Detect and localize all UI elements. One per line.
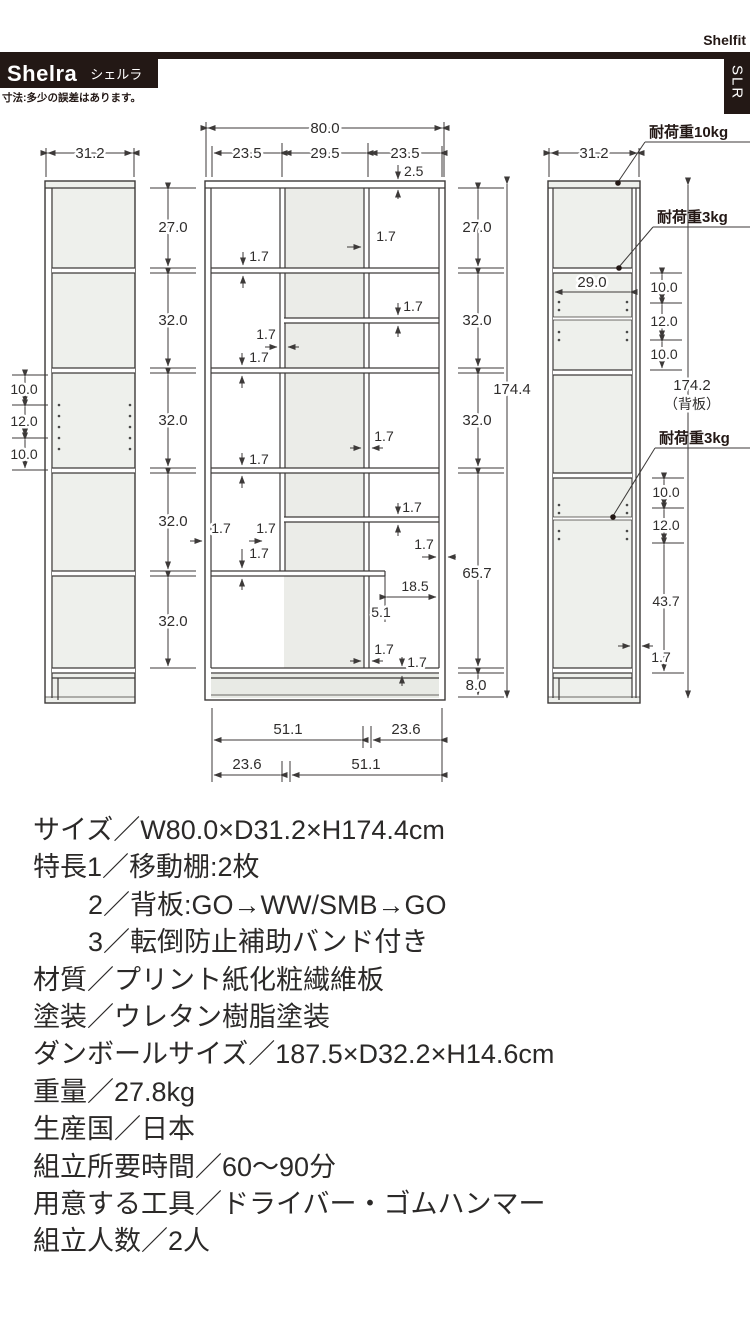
front-view: 80.0 23.5 29.5 23.5 2.5 <box>150 120 531 782</box>
dim-label: 8.0 <box>466 677 487 694</box>
dim-label: 174.2 <box>673 377 711 394</box>
dim-label: 32.0 <box>158 412 187 429</box>
dim-label: 12.0 <box>10 413 37 429</box>
dim-label: 32.0 <box>158 513 187 530</box>
svg-text:1.7: 1.7 <box>407 654 427 670</box>
dim-label: 174.4 <box>493 381 531 398</box>
dim-label: 27.0 <box>158 219 187 236</box>
dim-label: 43.7 <box>652 593 679 609</box>
dim-label: 23.6 <box>391 721 420 738</box>
spec-box-size: ダンボールサイズ／187.5×D32.2×H14.6cm <box>33 1036 733 1073</box>
svg-text:1.7: 1.7 <box>414 536 434 552</box>
spec-list: サイズ／W80.0×D31.2×H174.4cm 特長1／移動棚:2枚 2／背板… <box>33 812 733 1261</box>
svg-text:1.7: 1.7 <box>374 641 394 657</box>
dim-label: 31.2 <box>75 145 104 162</box>
side-view-right: 31.2 29.0 10.0 12.0 10.0 <box>548 123 750 703</box>
spec-feature-1: 特長1／移動棚:2枚 <box>33 849 733 886</box>
dim-label: 10.0 <box>10 381 37 397</box>
dim-label: 10.0 <box>652 484 679 500</box>
svg-text:1.7: 1.7 <box>249 248 269 264</box>
svg-text:1.7: 1.7 <box>402 499 422 515</box>
spec-people: 組立人数／2人 <box>33 1223 733 1260</box>
dim-label: 80.0 <box>310 120 339 137</box>
front-left-chain: 27.0 32.0 32.0 32.0 32.0 <box>150 188 196 668</box>
svg-text:1.7: 1.7 <box>249 545 269 561</box>
dim-label: 65.7 <box>462 565 491 582</box>
dim-label: 23.6 <box>232 756 261 773</box>
spec-assembly-time: 組立所要時間／60〜90分 <box>33 1149 733 1186</box>
dim-label: 12.0 <box>652 517 679 533</box>
spec-size: サイズ／W80.0×D31.2×H174.4cm <box>33 812 733 849</box>
load-label-shelf2: 耐荷重3kg <box>659 429 730 447</box>
dim-label: 10.0 <box>650 279 677 295</box>
dim-label: 51.1 <box>351 756 380 773</box>
dimension-diagram: 31.2 10.0 12.0 10.0 <box>0 0 750 795</box>
side-right-upper-pitch: 10.0 12.0 10.0 <box>650 273 682 370</box>
spec-feature-3: 3／転倒防止補助バンド付き <box>33 924 733 961</box>
svg-text:1.7: 1.7 <box>376 228 396 244</box>
svg-text:1.7: 1.7 <box>374 428 394 444</box>
spec-material: 材質／プリント紙化粧繊維板 <box>33 962 733 999</box>
dim-label: 18.5 <box>401 578 428 594</box>
svg-text:1.7: 1.7 <box>211 520 231 536</box>
front-bottom-dims: 51.1 23.6 23.6 51.1 <box>212 708 442 782</box>
dim-label: 27.0 <box>462 219 491 236</box>
dim-label: 29.5 <box>310 145 339 162</box>
dim-label: 51.1 <box>273 721 302 738</box>
svg-text:1.7: 1.7 <box>256 326 276 342</box>
dim-label: 2.5 <box>404 163 424 179</box>
dim-label: （背板） <box>664 396 720 412</box>
dim-label: 32.0 <box>462 312 491 329</box>
dim-label: 31.2 <box>579 145 608 162</box>
dim-label: 12.0 <box>650 313 677 329</box>
side-view-left: 31.2 10.0 12.0 10.0 <box>10 145 135 703</box>
dim-label: 1.7 <box>651 649 671 665</box>
dim-label: 23.5 <box>390 145 419 162</box>
dim-label: 5.1 <box>371 604 391 620</box>
spec-coating: 塗装／ウレタン樹脂塗装 <box>33 999 733 1036</box>
side-left-hole-pitch: 10.0 12.0 10.0 <box>10 375 48 470</box>
svg-text:1.7: 1.7 <box>249 451 269 467</box>
product-spec-sheet: Shelfit SLR Shelra シェルラ 寸法:多少の誤差はあります。 <box>0 0 750 1317</box>
dim-label: 10.0 <box>10 446 37 462</box>
svg-text:1.7: 1.7 <box>403 298 423 314</box>
dim-label: 29.0 <box>577 274 606 291</box>
spec-feature-2: 2／背板:GO→WW/SMB→GO <box>33 887 733 924</box>
dim-label: 10.0 <box>650 346 677 362</box>
spec-country: 生産国／日本 <box>33 1111 733 1148</box>
load-label-shelf1: 耐荷重3kg <box>657 208 728 226</box>
dim-label: 32.0 <box>158 312 187 329</box>
spec-weight: 重量／27.8kg <box>33 1074 733 1111</box>
dim-label: 32.0 <box>158 613 187 630</box>
svg-text:1.7: 1.7 <box>256 520 276 536</box>
front-right-chain: 27.0 32.0 32.0 65.7 8.0 <box>458 188 504 697</box>
dim-label: 32.0 <box>462 412 491 429</box>
dim-label: 23.5 <box>232 145 261 162</box>
spec-tools: 用意する工具／ドライバー・ゴムハンマー <box>33 1186 733 1223</box>
load-label-top: 耐荷重10kg <box>649 123 728 141</box>
svg-text:1.7: 1.7 <box>249 349 269 365</box>
